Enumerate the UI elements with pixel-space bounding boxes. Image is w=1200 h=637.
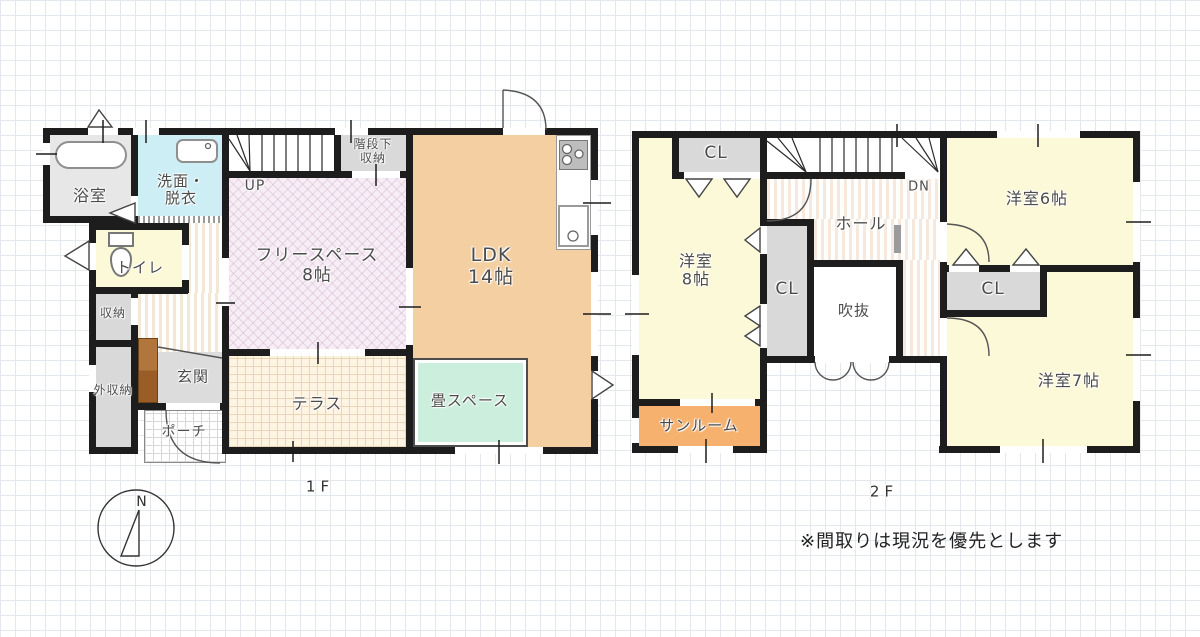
window-opening: [591, 180, 598, 235]
disclaimer-note: ※間取りは現況を優先とします: [800, 527, 1063, 553]
wall-segment: [89, 447, 137, 454]
window-opening: [1133, 182, 1140, 262]
window-opening: [760, 304, 767, 348]
wall-segment: [1133, 131, 1140, 453]
window-opening: [591, 371, 598, 399]
window-opening: [131, 196, 138, 216]
window-opening: [1010, 265, 1040, 272]
label-closet-right: CL: [981, 280, 1004, 300]
window-opening: [222, 258, 229, 306]
window-opening: [905, 172, 940, 179]
window-opening: [680, 399, 755, 406]
label-closet-mid: CL: [775, 280, 798, 300]
sliding-door-opening: [138, 216, 222, 223]
window-opening: [997, 131, 1080, 138]
window-opening: [949, 265, 979, 272]
window-opening: [632, 418, 639, 443]
window-opening: [591, 272, 598, 356]
label-western-8: 洋室 8帖: [679, 253, 713, 290]
label-up: UP: [245, 178, 266, 194]
shoe-cabinet: [138, 338, 158, 403]
wall-segment: [89, 287, 188, 294]
hall-side: [903, 260, 940, 356]
window-opening: [455, 447, 543, 454]
label-under-stair: 階段下 収納: [353, 138, 392, 166]
window-opening: [182, 245, 189, 280]
kitchen-sink: [558, 205, 589, 247]
stairs-2f: [767, 138, 940, 172]
wash-basin: [176, 139, 218, 163]
label-ldk: LDK 14帖: [468, 245, 514, 289]
wall-segment: [43, 216, 138, 223]
floorplan-canvas: 浴室 洗面・ 脱衣 階段下 収納 UP フリースペース 8帖 LDK 14帖 ト…: [0, 0, 1200, 637]
label-sunroom: サンルーム: [659, 417, 739, 434]
bathtub: [55, 141, 127, 169]
label-western-7: 洋室7帖: [1038, 372, 1100, 390]
label-storage: 収納: [100, 307, 126, 321]
window-opening: [270, 349, 365, 356]
wall-segment: [940, 131, 947, 453]
window-opening: [133, 128, 159, 135]
window-opening: [88, 128, 118, 135]
window-opening: [335, 128, 368, 135]
window-opening: [43, 143, 50, 165]
compass-north-label: N: [136, 494, 147, 510]
label-closet-top: CL: [704, 144, 727, 164]
window-opening: [1000, 446, 1087, 453]
label-terrace: テラス: [292, 395, 343, 413]
hall-pillar: [894, 225, 901, 253]
label-hall: ホール: [835, 215, 886, 233]
window-opening: [678, 446, 733, 453]
window-opening: [940, 318, 947, 356]
window-opening: [940, 222, 947, 262]
wall-segment: [334, 128, 341, 178]
label-floor-1f: 1F: [306, 478, 334, 495]
label-toilet: トイレ: [116, 259, 164, 276]
label-floor-2f: 2F: [870, 483, 898, 500]
wall-segment: [89, 340, 138, 347]
label-western-6: 洋室6帖: [1006, 190, 1068, 208]
hallway-upper: [188, 223, 222, 293]
label-atrium: 吹抜: [838, 302, 870, 319]
window-opening: [166, 403, 220, 410]
label-tatami: 畳スペース: [431, 392, 509, 409]
wall-segment: [947, 310, 1047, 317]
window-opening: [131, 298, 138, 325]
label-entrance: 玄関: [177, 368, 209, 385]
window-opening: [406, 268, 413, 345]
window-opening: [760, 226, 767, 254]
stairs-1f: [229, 135, 334, 171]
label-dn: DN: [908, 181, 930, 196]
label-free-space: フリースペース 8帖: [255, 246, 378, 285]
label-porch: ポーチ: [162, 424, 207, 440]
window-opening: [815, 356, 889, 363]
window-opening: [1133, 318, 1140, 401]
label-bath: 浴室: [73, 187, 107, 205]
window-opening: [684, 172, 760, 179]
window-opening: [503, 128, 545, 135]
wall-segment: [814, 260, 903, 267]
wall-segment: [807, 219, 814, 363]
stove: [559, 140, 588, 170]
window-opening: [89, 243, 96, 270]
label-washroom: 洗面・ 脱衣: [157, 173, 205, 208]
window-opening: [352, 171, 400, 178]
label-outside-storage: 外収納: [93, 384, 132, 398]
wall-segment: [89, 223, 188, 230]
window-opening: [632, 275, 639, 355]
toilet-tank: [108, 232, 134, 247]
wall-segment: [896, 260, 903, 363]
